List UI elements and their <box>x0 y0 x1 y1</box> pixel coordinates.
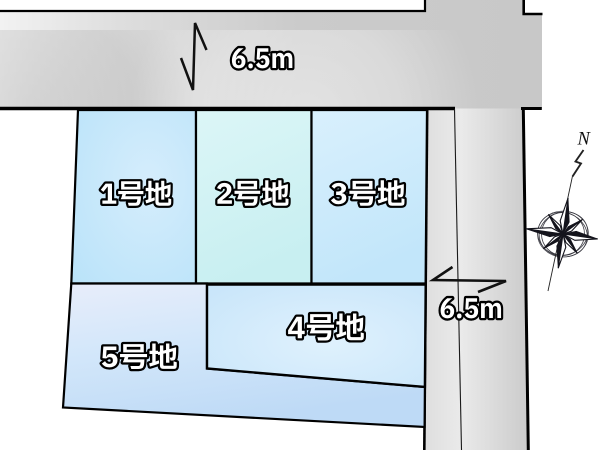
svg-text:N: N <box>577 130 592 150</box>
